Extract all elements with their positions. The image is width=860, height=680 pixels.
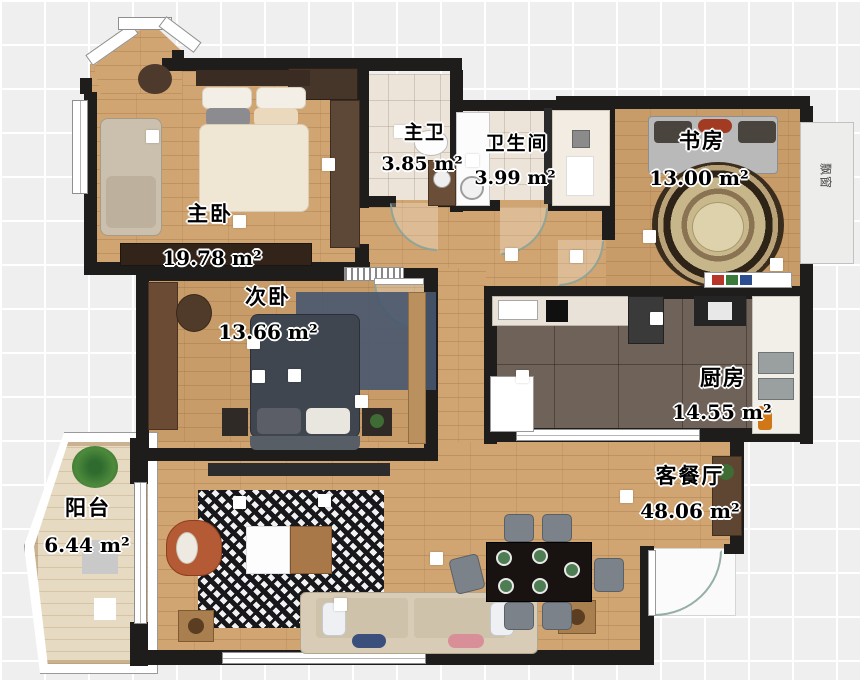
area-second-bedroom: 13.66 m² xyxy=(218,320,318,344)
coffee-table-mat xyxy=(246,526,290,574)
wall-segment xyxy=(80,78,92,94)
bed-master-pillow xyxy=(202,87,252,109)
label-kitchen: 厨房 xyxy=(700,362,746,392)
light-marker xyxy=(770,258,783,271)
sofa-pillow-navy xyxy=(352,634,386,648)
wall-segment xyxy=(724,544,744,554)
study-sofa-cushion xyxy=(738,121,776,143)
nightstand xyxy=(222,408,248,436)
light-marker xyxy=(570,250,583,263)
light-marker xyxy=(430,552,443,565)
range-hood-inner xyxy=(708,302,732,320)
plate xyxy=(532,578,548,594)
dining-chair xyxy=(504,514,534,542)
light-marker xyxy=(288,369,301,382)
bed-second-pillow xyxy=(306,408,350,434)
bay-window-panel xyxy=(800,122,854,264)
cooktop xyxy=(546,300,568,322)
books xyxy=(740,275,752,285)
desk xyxy=(148,282,178,430)
light-marker xyxy=(466,154,479,167)
plate xyxy=(564,562,580,578)
door-leaf-second-bedroom xyxy=(374,278,424,285)
dining-chair xyxy=(594,558,624,592)
accent-chair-pillow xyxy=(176,532,198,564)
wall-segment xyxy=(172,50,184,64)
label-living-dining: 客餐厅 xyxy=(656,460,725,490)
double-sink xyxy=(758,378,794,400)
door-leaf-entry xyxy=(648,550,656,616)
area-study: 13.00 m² xyxy=(649,166,749,190)
books xyxy=(712,275,724,285)
wall-segment xyxy=(800,286,813,444)
bed-second-base xyxy=(250,436,360,450)
plant-pot xyxy=(370,414,384,428)
label-master-bath: 主卫 xyxy=(404,118,446,145)
double-sink xyxy=(758,352,794,374)
area-kitchen: 14.55 m² xyxy=(672,400,772,424)
light-marker xyxy=(146,130,159,143)
wall-segment xyxy=(544,108,552,204)
light-marker xyxy=(233,496,246,509)
light-marker xyxy=(620,490,633,503)
bed-second-pillow xyxy=(257,408,301,434)
books xyxy=(726,275,738,285)
kitchen-sink xyxy=(498,300,538,320)
label-balcony: 阳台 xyxy=(65,492,111,522)
area-master-bedroom: 19.78 m² xyxy=(162,246,262,270)
lounge-chair-cushion xyxy=(106,176,156,228)
wardrobe-right xyxy=(330,100,360,248)
light-marker xyxy=(650,312,663,325)
wall-segment xyxy=(556,96,810,109)
wall-segment xyxy=(130,622,148,666)
label-study: 书房 xyxy=(679,125,725,155)
bay-window-label: 飘窗 xyxy=(818,163,835,189)
shower-head xyxy=(572,130,590,148)
light-marker xyxy=(355,395,368,408)
light-marker xyxy=(322,158,335,171)
balcony-sliding-door xyxy=(134,482,147,624)
shower-mat xyxy=(566,156,594,196)
cabinet-right xyxy=(408,292,426,444)
window-master-bedroom xyxy=(72,100,88,194)
wall-segment xyxy=(130,438,148,484)
sofa-pillow-pink xyxy=(448,634,484,648)
label-master-bedroom: 主卧 xyxy=(187,198,233,228)
study-round-table xyxy=(692,202,744,252)
bed-master-headboard xyxy=(196,70,310,86)
kitchen-sliding-door xyxy=(490,376,534,432)
bed-master-pillow xyxy=(256,87,306,109)
balcony-box xyxy=(94,598,116,620)
light-marker xyxy=(318,494,331,507)
plate xyxy=(496,550,512,566)
plate xyxy=(498,578,514,594)
light-marker xyxy=(233,215,246,228)
balcony-plant xyxy=(72,446,118,488)
light-marker xyxy=(643,230,656,243)
light-marker xyxy=(334,598,347,611)
area-master-bath: 3.85 m² xyxy=(381,153,462,175)
dining-chair xyxy=(542,514,572,542)
light-marker xyxy=(252,370,265,383)
dining-chair xyxy=(542,602,572,630)
area-bathroom: 3.99 m² xyxy=(474,167,555,189)
area-balcony: 6.44 m² xyxy=(44,533,130,557)
floor-plan-canvas: 飘窗 xyxy=(0,0,860,680)
label-bathroom: 卫生间 xyxy=(485,129,548,156)
label-second-bedroom: 次卧 xyxy=(245,281,291,311)
light-marker xyxy=(505,248,518,261)
speaker xyxy=(188,618,204,634)
desk-chair xyxy=(176,294,212,332)
dining-chair xyxy=(504,602,534,630)
window-kitchen xyxy=(516,429,700,441)
area-living-dining: 48.06 m² xyxy=(640,499,740,523)
tv-console xyxy=(208,463,390,476)
bay-desk-chair xyxy=(138,64,172,94)
plate xyxy=(532,548,548,564)
light-marker xyxy=(516,370,529,383)
coffee-table xyxy=(290,526,332,574)
